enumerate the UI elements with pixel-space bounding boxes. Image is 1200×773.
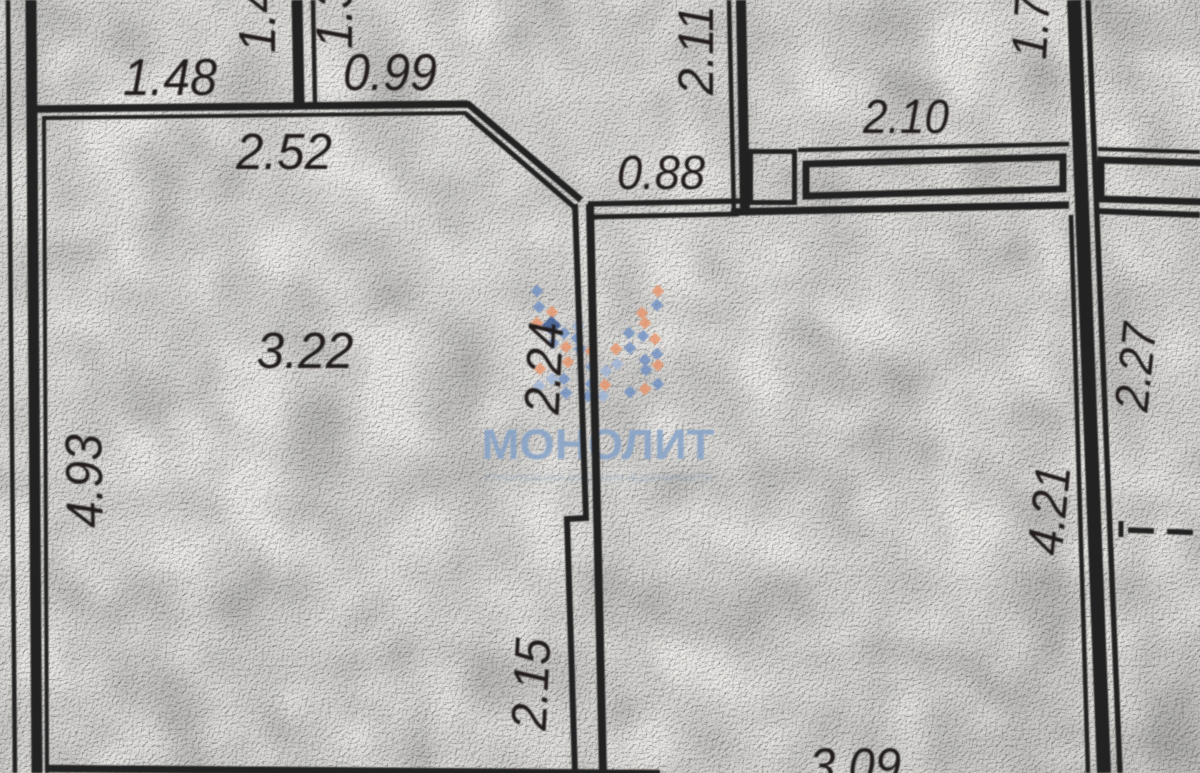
svg-text:1.48: 1.48: [229, 0, 287, 53]
svg-text:4.21: 4.21: [1016, 462, 1081, 557]
svg-text:0.99: 0.99: [343, 44, 437, 102]
svg-text:2.52: 2.52: [235, 123, 332, 180]
svg-text:4.93: 4.93: [55, 433, 115, 528]
svg-text:3.09: 3.09: [809, 738, 901, 773]
svg-text:2.10: 2.10: [862, 91, 949, 144]
svg-text:1.71: 1.71: [1001, 0, 1063, 61]
svg-text:2.24: 2.24: [514, 321, 575, 417]
svg-text:2.15: 2.15: [501, 636, 562, 732]
svg-text:2.11: 2.11: [668, 5, 724, 96]
svg-text:2.27: 2.27: [1105, 319, 1167, 415]
svg-text:1.36: 1.36: [306, 0, 364, 49]
svg-text:0.88: 0.88: [617, 147, 705, 200]
svg-text:3.22: 3.22: [257, 322, 354, 379]
svg-text:1.48: 1.48: [123, 49, 217, 107]
